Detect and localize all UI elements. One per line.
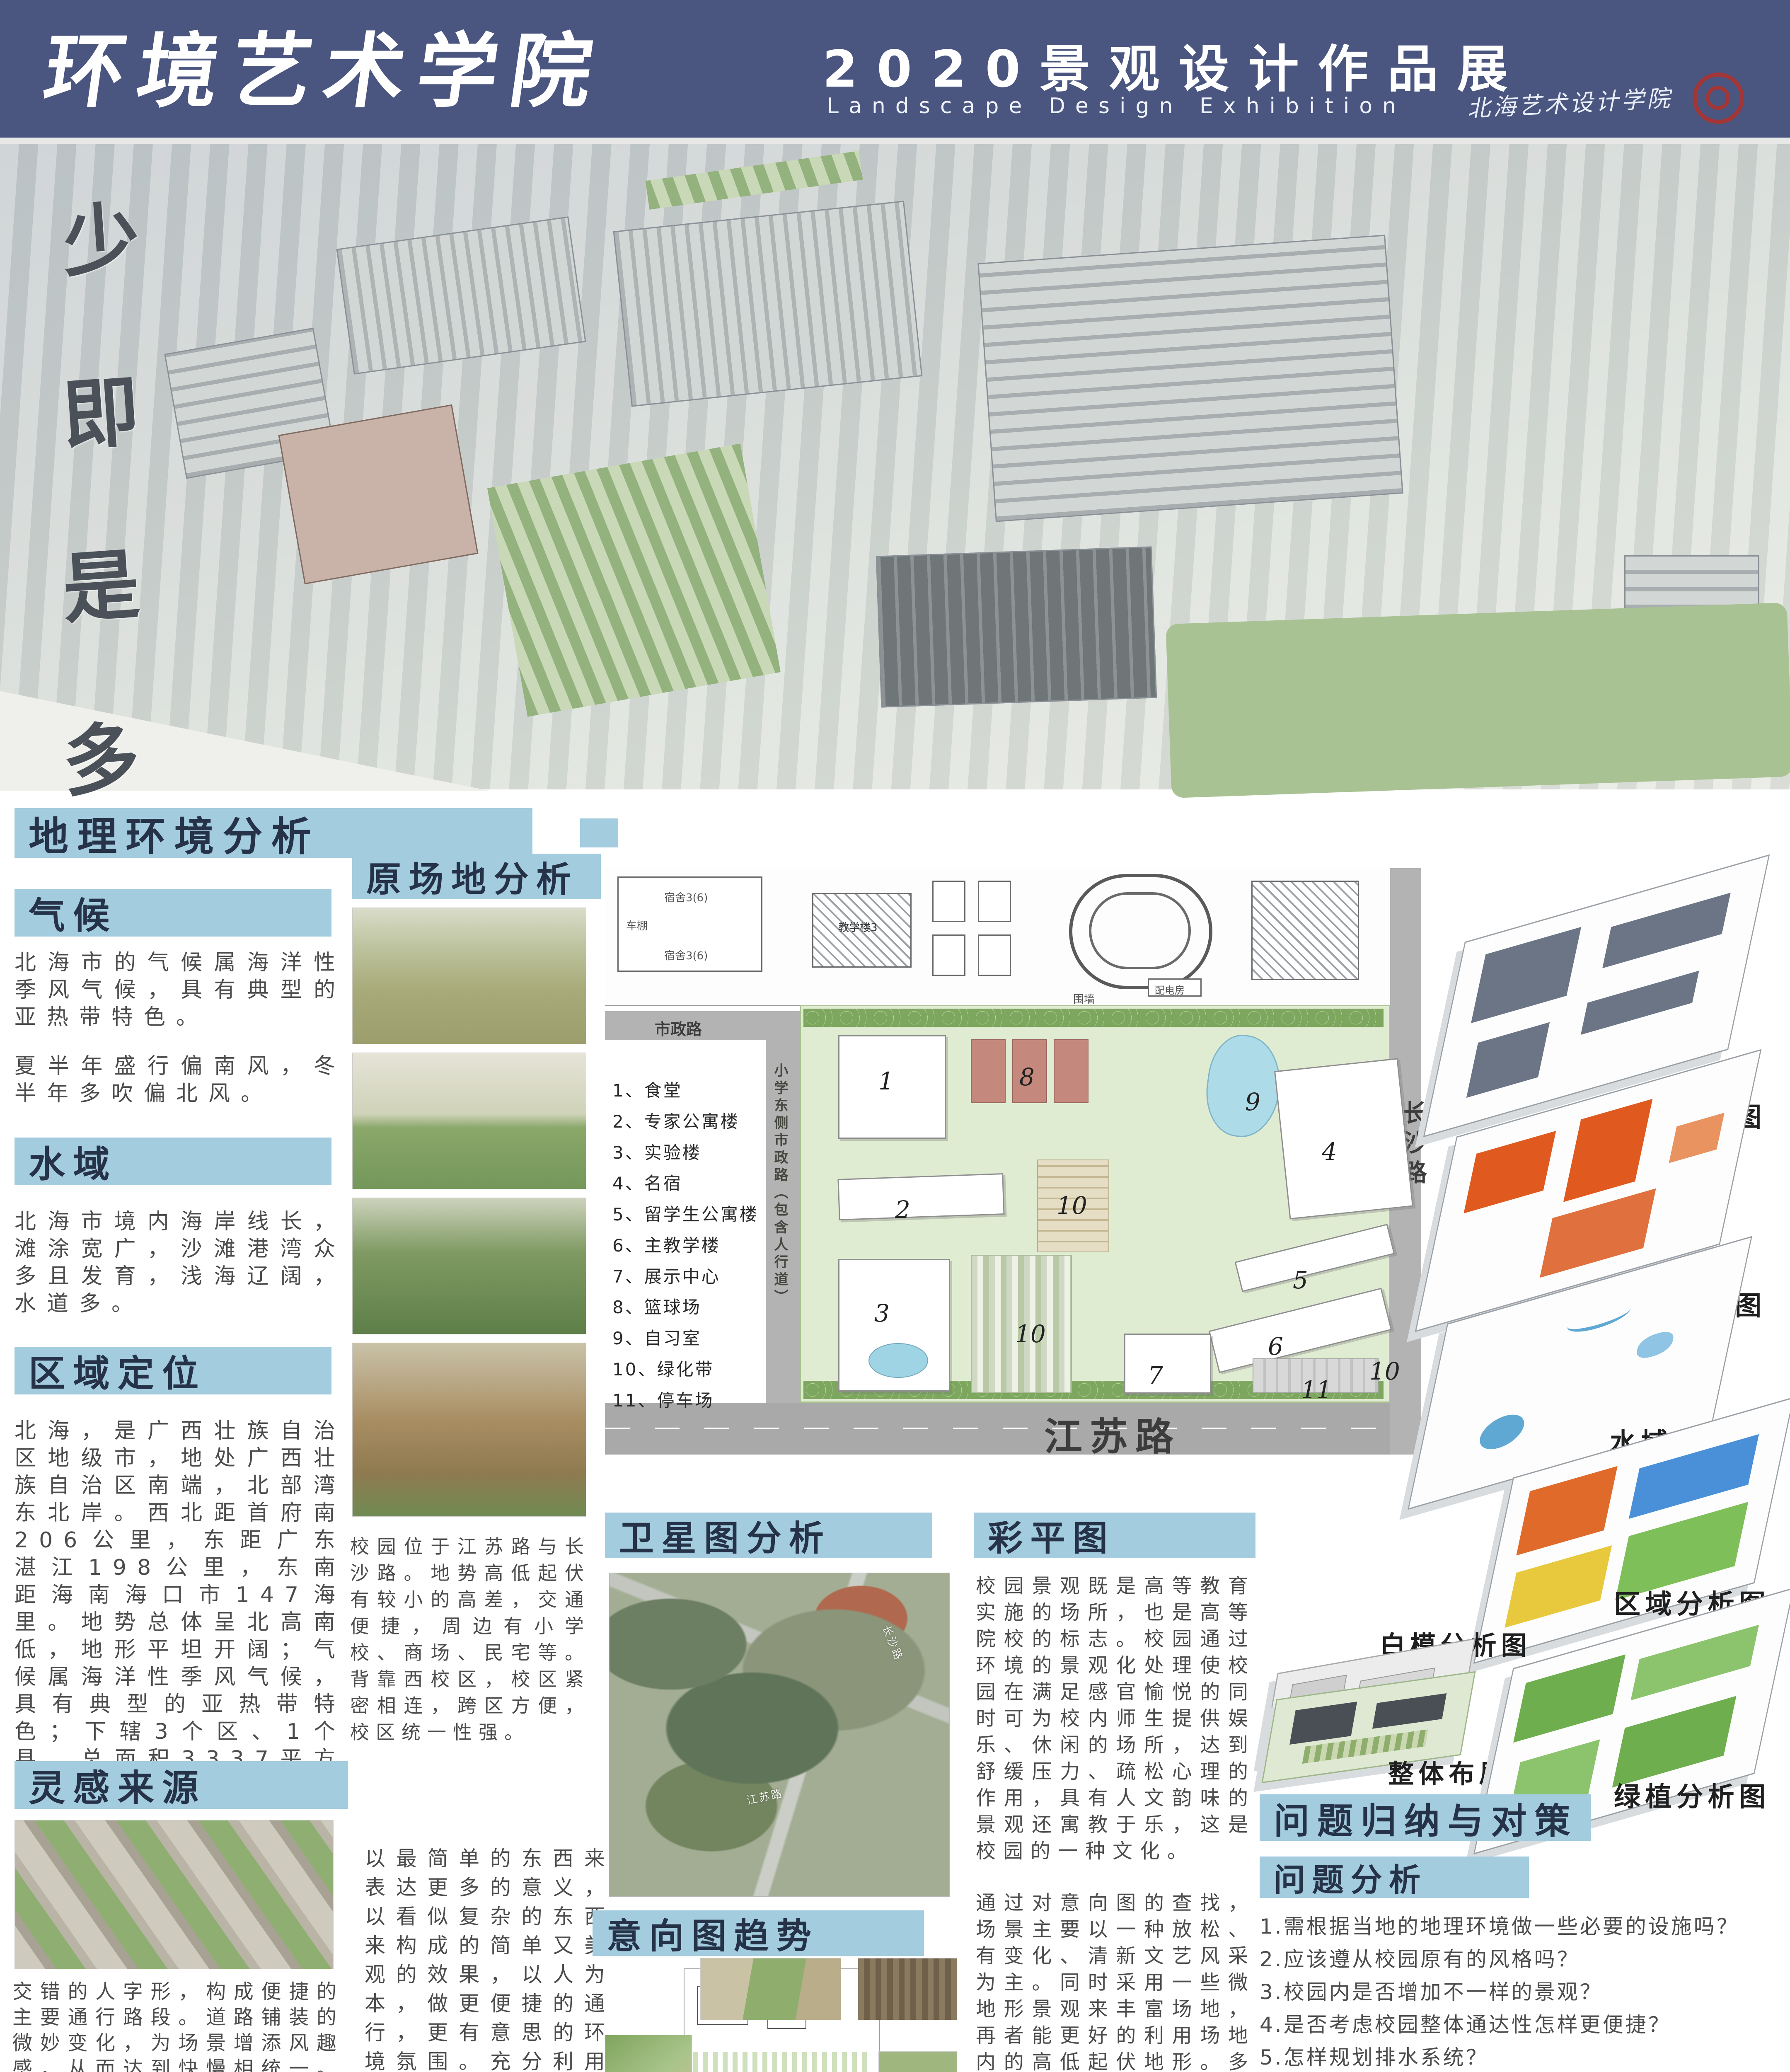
basketball-court — [1054, 1039, 1089, 1103]
court-outline — [932, 934, 965, 976]
legend-item: 1、食堂 — [612, 1075, 759, 1106]
hero-rendering: 少 即 是 多 — [0, 144, 1790, 789]
building-shape — [613, 201, 923, 407]
subsection-location: 区域定位 — [15, 1347, 331, 1394]
site-photo-3 — [352, 1198, 586, 1334]
annotation-dorm2: 宿舍3(6) — [664, 947, 708, 963]
satellite-road-label-b: 长沙路 — [879, 1623, 907, 1663]
problem-list: 1.需根据当地的地理环境做一些必要的设施吗？ 2.应该遵从校园原有的风格吗？ 3… — [1260, 1910, 1786, 2072]
hero-slogan: 少 即 是 多 — [62, 177, 170, 808]
logo-text: 北海艺术设计学院 — [1466, 80, 1673, 124]
power-room-outline: 配电房 — [1148, 978, 1202, 997]
slogan-char: 是 — [58, 520, 174, 638]
problem-item: 1.需根据当地的地理环境做一些必要的设施吗？ — [1260, 1910, 1786, 1943]
problem-item: 3.校园内是否增加不一样的景观？ — [1260, 1976, 1786, 2009]
basketball-court — [971, 1039, 1006, 1103]
teach-building-outline: 教学楼3 — [812, 893, 912, 968]
accent-square — [580, 818, 618, 847]
plan-legend: 1、食堂 2、专家公寓楼 3、实验楼 4、名宿 5、留学生公寓楼 6、主教学楼 … — [612, 1075, 759, 1416]
satellite-image: 江苏路 长沙路 — [609, 1573, 950, 1897]
satellite-road-label-a: 江苏路 — [745, 1785, 785, 1808]
annotation-shed: 车棚 — [626, 917, 648, 933]
green-block — [1612, 1696, 1737, 1787]
climate-text-1: 北海市的气候属海洋性季风气候，具有典型的亚热带特色。 — [15, 949, 346, 1031]
legend-item: 3、实验楼 — [612, 1138, 759, 1169]
problem-item: 4.是否考虑校园整体通达性怎样更便捷？ — [1260, 2009, 1786, 2041]
water-text: 北海市境内海岸线长，滩涂宽广，沙滩港湾众多且发育，浅海辽阔，水道多。 — [15, 1208, 346, 1317]
court-outline — [978, 934, 1011, 976]
road-north-label: 市政路 — [655, 1017, 702, 1039]
intent-photo-park — [700, 1958, 841, 2020]
orange-block — [1463, 1131, 1556, 1213]
legend-item: 6、主教学楼 — [612, 1230, 759, 1261]
tree-row — [803, 1009, 1384, 1027]
intent-photo-wall — [858, 1958, 957, 2020]
intent-photo-road — [878, 2051, 957, 2072]
building-shape-dark — [876, 546, 1157, 707]
gray-block — [1466, 1022, 1550, 1098]
orange-block — [1669, 1113, 1725, 1163]
orange-block — [1540, 1188, 1656, 1278]
intent-photo-terrace — [605, 2035, 692, 2072]
green-block — [1513, 1654, 1626, 1743]
region-orange — [1516, 1466, 1617, 1556]
header-bar: 环境艺术学院 2020景观设计作品展 Landscape Design Exhi… — [0, 0, 1790, 138]
plan-number: 2 — [895, 1196, 910, 1224]
header-divider — [0, 138, 1790, 144]
legend-item: 7、展示中心 — [612, 1261, 759, 1293]
plan-pool-9 — [1200, 1031, 1287, 1142]
poster-root: 环境艺术学院 2020景观设计作品展 Landscape Design Exhi… — [0, 0, 1790, 2072]
problem-item: 5.怎样规划排水系统？ — [1260, 2041, 1786, 2072]
inspiration-text: 交错的人字形，构成便捷的主要通行路段。道路铺装的微妙变化，为场景增添风趣感，从而… — [12, 1979, 344, 2072]
section-site-analysis: 原场地分析 — [352, 854, 601, 899]
plan-building-2 — [837, 1173, 1004, 1220]
planting-analysis-label: 绿植分析图 — [1614, 1776, 1771, 1814]
plan-number: 6 — [1268, 1332, 1283, 1360]
legend-item: 5、留学生公寓楼 — [612, 1199, 759, 1230]
color-plan-text-2: 通过对意向图的查找，场景主要以一种放松、有变化、清新文艺风采为主。同时采用一些微… — [976, 1890, 1255, 2072]
problem-item: 2.应该遵从校园原有的风格吗？ — [1260, 1943, 1786, 1976]
subsection-climate: 气候 — [15, 889, 331, 937]
slogan-char: 即 — [58, 347, 174, 465]
section-color-plan: 彩平图 — [974, 1513, 1255, 1558]
plan-number: 7 — [1148, 1361, 1163, 1389]
plan-number: 8 — [1019, 1063, 1035, 1091]
annotation-power: 配电房 — [1155, 982, 1185, 997]
court-outline — [932, 881, 965, 922]
plan-number: 1 — [878, 1067, 894, 1095]
orange-block — [1563, 1099, 1652, 1202]
annotation-teach: 教学楼3 — [838, 919, 878, 934]
subsection-water: 水域 — [15, 1138, 331, 1185]
slogan-char: 多 — [58, 693, 174, 811]
section-geo-analysis: 地理环境分析 — [15, 808, 532, 858]
section-problems: 问题归纳与对策 — [1260, 1794, 1591, 1841]
site-photo-4 — [352, 1343, 586, 1517]
color-plan-text-1: 校园景观既是高等教育实施的场所，也是高等院校的标志。校园通过环境的景观化处理使校… — [976, 1573, 1255, 1864]
plan-number: 10 — [1369, 1357, 1400, 1385]
lawn-stripes — [487, 443, 781, 716]
master-plan: 宿舍3(6) 车棚 宿舍3(6) 教学楼3 配电房 围墙 市政路 小学东侧市政路… — [605, 868, 1421, 1477]
water-curve — [1565, 1297, 1633, 1337]
plan-building-3 — [838, 1259, 950, 1392]
exhibition-subtitle-cn: 2020景观设计作品展 — [822, 28, 1527, 102]
plan-building-5 — [1235, 1224, 1395, 1292]
slogan-char: 少 — [58, 174, 174, 292]
school-title: 环境艺术学院 — [37, 6, 613, 123]
plan-pool-3 — [868, 1343, 928, 1378]
gray-block — [1471, 927, 1581, 1023]
legend-item: 2、专家公寓楼 — [612, 1106, 759, 1138]
plan-number: 11 — [1301, 1376, 1332, 1404]
site-caption: 校园位于江苏路与长沙路。地势高低起伏有较小的高差，交通便捷，周边有小学校、商场、… — [350, 1533, 590, 1745]
gray-block — [1581, 971, 1699, 1035]
legend-item: 10、绿化带 — [612, 1354, 759, 1385]
annotation-dorm: 宿舍3(6) — [664, 889, 708, 905]
site-photo-1 — [352, 908, 586, 1044]
location-text: 北海，是广西壮族自治区地级市，地处广西壮族自治区南端，北部湾东北岸。西北距首府南… — [15, 1417, 346, 1800]
building-shape-red — [278, 404, 478, 584]
concept-text: 以最简单的东西来表达更多的意义，以看似复杂的东西来构成的简单又美观的效果，以人为… — [365, 1844, 613, 2072]
legend-item: 9、自习室 — [612, 1323, 759, 1354]
plan-number: 10 — [1057, 1191, 1087, 1220]
west-campus-linework: 宿舍3(6) 车棚 宿舍3(6) 教学楼3 配电房 围墙 — [605, 868, 1390, 1006]
section-satellite: 卫星图分析 — [605, 1513, 932, 1558]
school-logo: 北海艺术设计学院 — [1467, 73, 1757, 126]
road-south-label: 江苏路 — [1044, 1406, 1181, 1461]
section-inspiration: 灵感来源 — [15, 1761, 348, 1809]
plan-number: 9 — [1245, 1088, 1260, 1116]
gray-block — [1602, 893, 1731, 968]
court-outline — [978, 881, 1011, 922]
running-track-outline — [1069, 874, 1212, 989]
fragment-green — [693, 2052, 867, 2072]
green-field — [1166, 603, 1790, 798]
plan-number: 4 — [1322, 1138, 1337, 1166]
dark-building — [1289, 1702, 1357, 1745]
legend-item: 4、名宿 — [612, 1168, 759, 1199]
annotation-wall: 围墙 — [1073, 991, 1095, 1006]
campus-area — [800, 1005, 1390, 1403]
inspiration-photo — [15, 1820, 334, 1969]
water-shape — [1477, 1409, 1527, 1454]
subsection-problem-analysis: 问题分析 — [1260, 1857, 1529, 1898]
spiral-logo-icon — [1693, 73, 1744, 124]
plan-number: 10 — [1015, 1320, 1046, 1348]
dorm-block-outline: 宿舍3(6) 车棚 宿舍3(6) — [617, 876, 762, 972]
climate-text-2: 夏半年盛行偏南风，冬半年多吹偏北风。 — [15, 1053, 346, 1107]
green-block — [1631, 1625, 1759, 1700]
region-yellow — [1505, 1545, 1612, 1628]
plan-building-4 — [1274, 1058, 1413, 1219]
water-shape — [1635, 1328, 1675, 1361]
exhibition-subtitle-en: Landscape Design Exhibition — [827, 94, 1406, 119]
hatched-building-outline — [1251, 881, 1359, 980]
dark-building — [1372, 1693, 1447, 1729]
plan-building-7 — [1124, 1334, 1211, 1394]
section-intent: 意向图趋势 — [593, 1910, 924, 1956]
building-shape-large — [977, 235, 1403, 522]
legend-item: 8、篮球场 — [612, 1292, 759, 1323]
road-west-label: 小学东侧市政路（包含人行道） — [770, 1063, 790, 1307]
plan-number: 3 — [874, 1299, 890, 1327]
plan-number: 5 — [1293, 1266, 1308, 1294]
site-photo-2 — [352, 1053, 586, 1189]
legend-item: 11、停车场 — [612, 1385, 759, 1416]
